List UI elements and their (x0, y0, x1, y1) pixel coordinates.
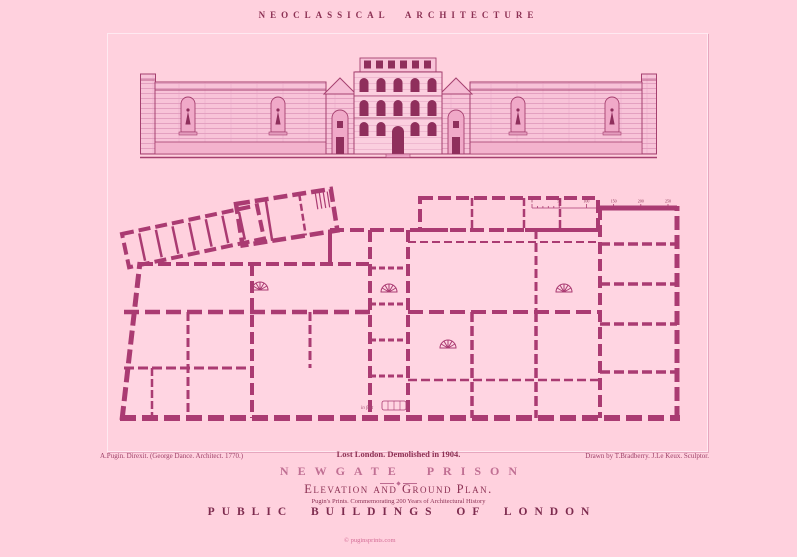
svg-text:0: 0 (531, 199, 533, 204)
center-door (392, 126, 404, 154)
print-subtitle: Elevation and Ground Plan. (0, 482, 797, 497)
statue-niche (509, 97, 527, 135)
stair-hatch (315, 192, 329, 210)
series-note: Pugin's Prints. Commemorating 200 Years … (0, 498, 797, 505)
ground-plan-drawing: 0 50 100 150 200 250 in feet (112, 172, 690, 434)
statue-niche (603, 97, 621, 135)
svg-text:150: 150 (611, 199, 617, 204)
elevation-drawing (140, 54, 657, 166)
svg-text:250: 250 (665, 199, 671, 204)
page-title: NEOCLASSICAL ARCHITECTURE (0, 10, 797, 20)
credit-engraver: Drawn by T.Bradberry. J.Le Keux. Sculpto… (585, 452, 709, 460)
print-title: NEWGATE PRISON (0, 464, 797, 479)
svg-text:50: 50 (557, 199, 561, 204)
plan-footprint (122, 206, 678, 420)
entrance-steps (386, 154, 410, 158)
statue-niche (179, 97, 197, 135)
statue-niche (269, 97, 287, 135)
plan-skewed-block (236, 189, 337, 246)
svg-text:100: 100 (583, 199, 589, 204)
series-title: PUBLIC BUILDINGS OF LONDON (0, 506, 797, 518)
entrance-pavilion (440, 78, 472, 154)
svg-text:200: 200 (638, 199, 644, 204)
plan-angled-cell-wing (122, 205, 264, 267)
facade-center-block (354, 58, 442, 158)
watermark: © puginsprints.com (344, 537, 396, 544)
entrance-pavilion (324, 78, 356, 154)
svg-text:in feet: in feet (361, 406, 374, 411)
